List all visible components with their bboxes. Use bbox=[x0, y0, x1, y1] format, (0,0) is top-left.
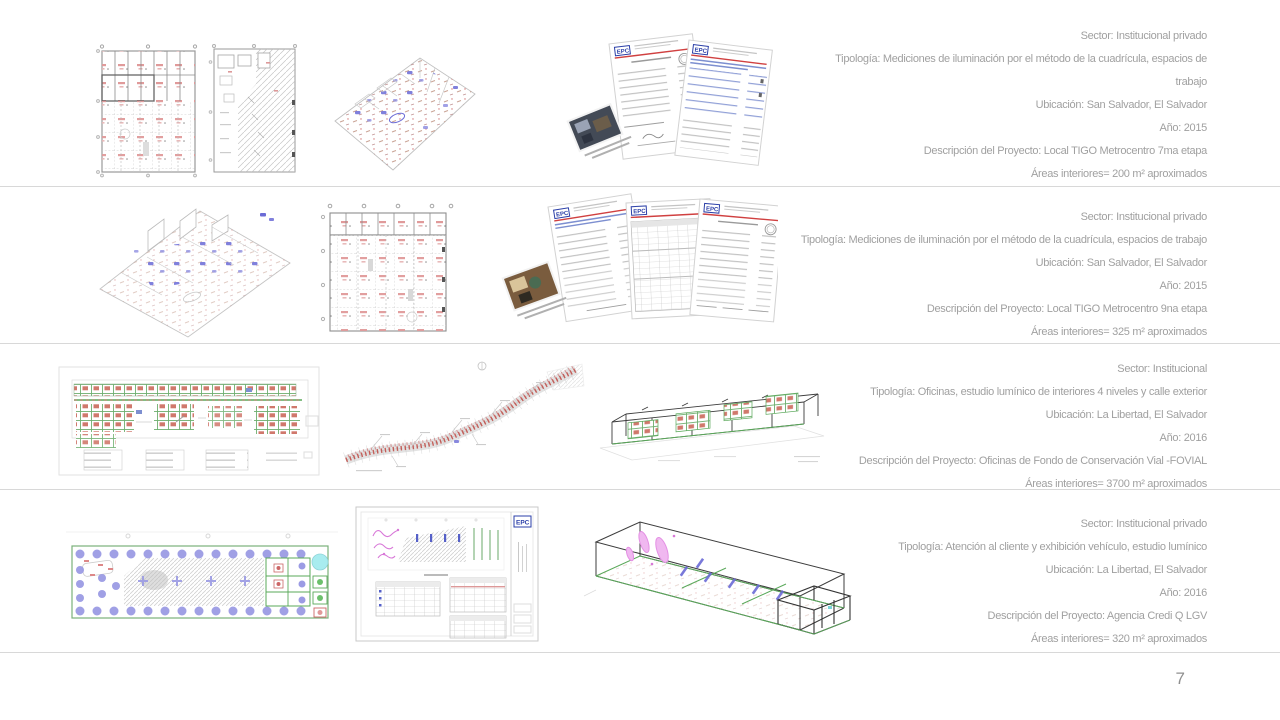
project-row-3: Sector: Institucional Tipología: Oficina… bbox=[0, 344, 1280, 490]
project-tipologia-cont: trabajo bbox=[835, 71, 1207, 94]
thumb-measurement-report-pages bbox=[490, 191, 778, 341]
thumb-isometric-building-model bbox=[598, 360, 826, 480]
project-tipologia: Tipología: Oficinas, estudio lumínico de… bbox=[859, 381, 1207, 404]
project-anio: Año: 2016 bbox=[898, 582, 1207, 605]
project-tipologia: Tipología: Mediciones de iluminación por… bbox=[801, 229, 1207, 252]
project-row-4: EPC bbox=[0, 490, 1280, 653]
project-ubicacion: Ubicación: La Libertad, El Salvador bbox=[898, 559, 1207, 582]
project-descripcion: Descripción del Proyecto: Agencia Credi … bbox=[898, 605, 1207, 628]
project-tipologia: Tipología: Atención al cliente y exhibic… bbox=[898, 536, 1207, 559]
project-areas: Áreas interiores= 325 m² aproximados bbox=[801, 321, 1207, 344]
epc-logo: EPC bbox=[516, 520, 530, 527]
project-anio: Año: 2015 bbox=[801, 275, 1207, 298]
thumb-showroom-floor-plan bbox=[58, 518, 348, 646]
thumb-reflected-ceiling-plan bbox=[95, 42, 202, 178]
page-footer: 7 bbox=[0, 653, 1280, 719]
project-descripcion: Descripción del Proyecto: Oficinas de Fo… bbox=[859, 450, 1207, 473]
project-ubicacion: Ubicación: San Salvador, El Salvador bbox=[835, 94, 1207, 117]
project-row-1: Sector: Institucional privado Tipología:… bbox=[0, 0, 1280, 187]
project-sector: Sector: Institucional privado bbox=[898, 513, 1207, 536]
project-sector: Sector: Institucional bbox=[859, 358, 1207, 381]
report-page bbox=[690, 199, 778, 322]
thumb-office-floor-plan bbox=[58, 366, 320, 476]
thumb-measurement-report-pages bbox=[565, 30, 775, 180]
page-number: 7 bbox=[1176, 669, 1185, 689]
project-info: Sector: Institucional privado Tipología:… bbox=[801, 206, 1207, 344]
project-sector: Sector: Institucional privado bbox=[801, 206, 1207, 229]
thumb-isometric-lighting-model bbox=[92, 197, 297, 340]
project-row-2: Sector: Institucional privado Tipología:… bbox=[0, 187, 1280, 344]
thumb-exterior-street-plan bbox=[332, 356, 587, 478]
project-anio: Año: 2015 bbox=[835, 117, 1207, 140]
project-anio: Año: 2016 bbox=[859, 427, 1207, 450]
project-info: Sector: Institucional privado Tipología:… bbox=[898, 513, 1207, 651]
project-areas: Áreas interiores= 200 m² aproximados bbox=[835, 163, 1207, 186]
project-ubicacion: Ubicación: La Libertad, El Salvador bbox=[859, 404, 1207, 427]
project-descripcion: Descripción del Proyecto: Local TIGO Met… bbox=[801, 298, 1207, 321]
thumb-isometric-lighting-model bbox=[325, 46, 480, 176]
project-descripcion: Descripción del Proyecto: Local TIGO Met… bbox=[835, 140, 1207, 163]
project-ubicacion: Ubicación: San Salvador, El Salvador bbox=[801, 252, 1207, 275]
thumb-sampling-points-plan bbox=[208, 42, 301, 178]
thumb-sampling-grid-plan bbox=[318, 199, 458, 341]
project-areas: Áreas interiores= 320 m² aproximados bbox=[898, 628, 1207, 651]
thumb-layout-sheet: EPC bbox=[354, 504, 540, 644]
project-tipologia: Tipología: Mediciones de iluminación por… bbox=[835, 48, 1207, 71]
thumb-isometric-building-model bbox=[582, 500, 874, 638]
report-page bbox=[675, 40, 773, 165]
project-sector: Sector: Institucional privado bbox=[835, 25, 1207, 48]
project-info: Sector: Institucional Tipología: Oficina… bbox=[859, 358, 1207, 496]
project-info: Sector: Institucional privado Tipología:… bbox=[835, 25, 1207, 186]
